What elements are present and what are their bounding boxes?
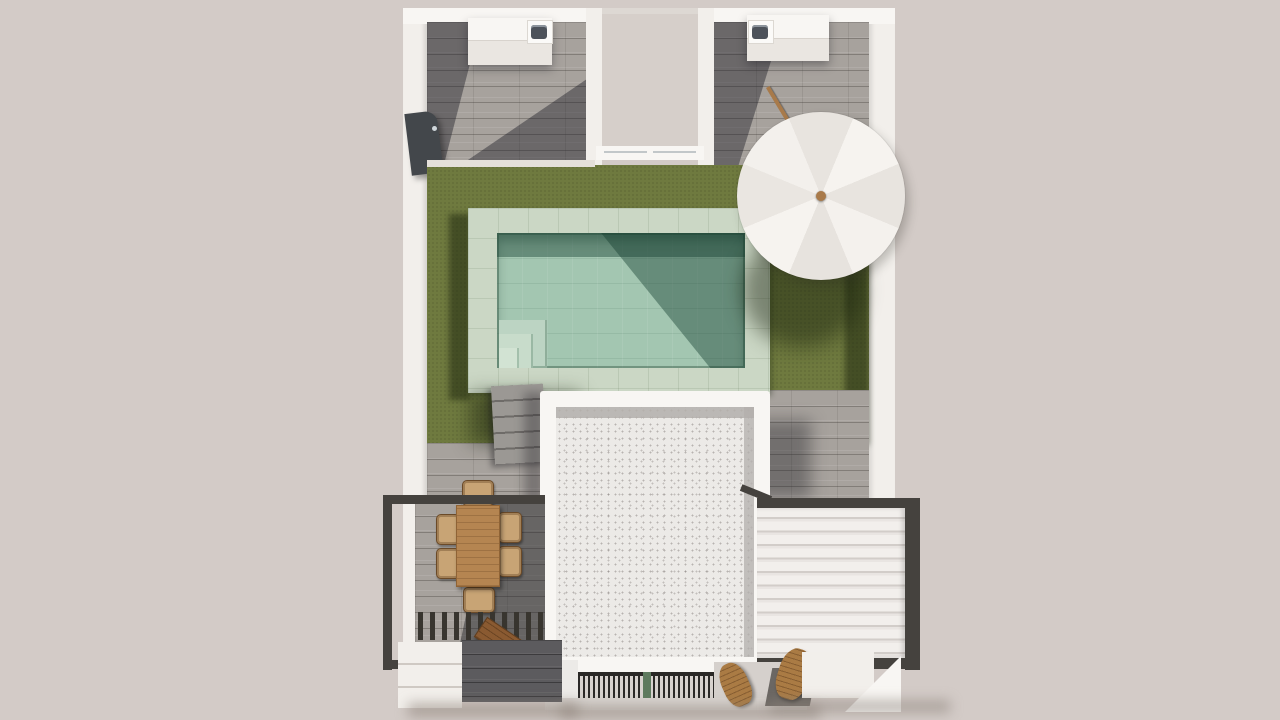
parasol-knob (816, 191, 826, 201)
shower-valve (432, 126, 437, 131)
notch-right-wall (698, 8, 714, 165)
dark-tile-patch (462, 640, 562, 702)
planter-block-right (802, 652, 874, 698)
notch-left-wall (586, 8, 602, 165)
grate-green-strip (643, 672, 651, 698)
courtyard-floor (602, 14, 698, 148)
patio-lawn-sill (427, 160, 595, 167)
dining-chair-bottom (463, 587, 495, 613)
step-block-left (398, 642, 462, 708)
roof-gravel-band-right (744, 407, 754, 657)
render-stage (0, 0, 1280, 720)
pergola-beam-top (383, 495, 545, 504)
louver-beam-top (757, 498, 920, 508)
sliding-door-sill (596, 146, 704, 160)
dining-table (456, 505, 500, 587)
louver-beam-right (905, 498, 920, 670)
garden-steps (491, 384, 547, 465)
roof-gravel-band-top (556, 407, 754, 418)
roof-gravel (556, 407, 754, 657)
sliding-door-glass-left (604, 151, 647, 153)
pergola-beam-left (383, 495, 392, 670)
dining-chair-right-2 (498, 546, 522, 577)
sliding-door-glass-right (653, 151, 696, 153)
pool-step-3 (499, 348, 519, 368)
dining-chair-right-1 (498, 512, 522, 543)
sink-unit-right (752, 25, 768, 39)
louver-panel (757, 508, 905, 658)
sink-unit-left (531, 25, 547, 39)
